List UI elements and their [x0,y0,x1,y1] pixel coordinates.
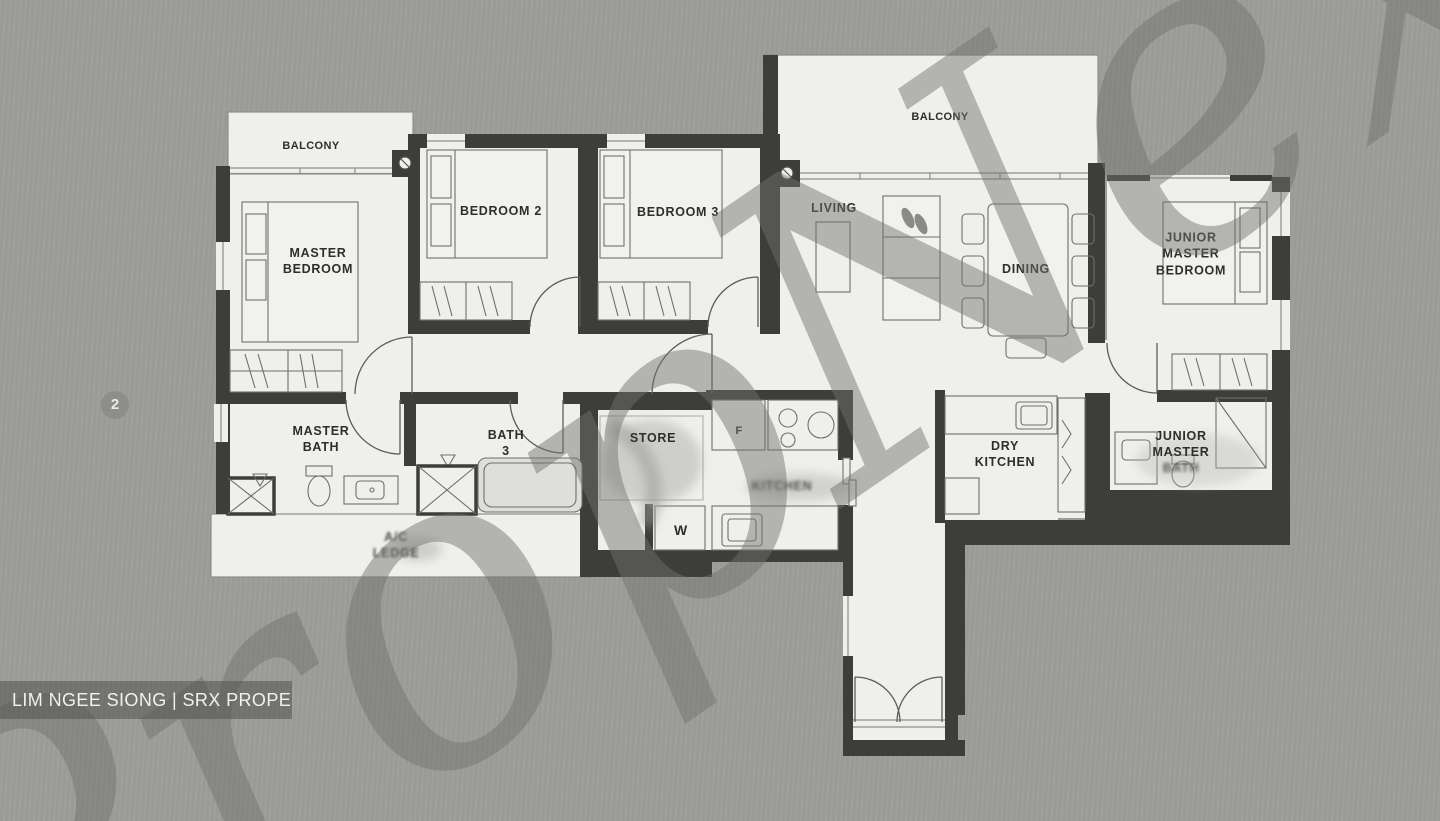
fridge-label: F [735,424,742,438]
room-label-ac-ledge: A/C LEDGE [373,529,420,562]
room-label-junior-master-bath-smudged: BATH [1163,460,1200,476]
room-label-living: LIVING [811,200,857,216]
attribution-bar: LIM NGEE SIONG | SRX PROPERTY [0,681,292,719]
room-label-junior-master-bath: JUNIOR MASTER [1153,428,1210,461]
room-label-store: STORE [630,430,676,446]
floor-marker-badge: 2 [101,391,129,419]
attribution-text: LIM NGEE SIONG | SRX PROPERTY [12,690,292,710]
room-label-bedroom-2: BEDROOM 2 [460,203,542,219]
room-label-master-bath: MASTER BATH [293,423,350,456]
room-label-kitchen-smudged: KITCHEN [752,478,812,494]
room-label-bedroom-3: BEDROOM 3 [637,204,719,220]
room-label-master-bedroom: MASTER BEDROOM [283,245,353,278]
room-label-balcony-left: BALCONY [282,139,339,153]
room-label-bath-3: BATH 3 [488,427,525,460]
room-label-junior-master-bedroom: JUNIOR MASTER BEDROOM [1156,230,1226,279]
room-label-dining: DINING [1002,261,1050,277]
washer-label: W [674,521,688,539]
room-label-balcony-top: BALCONY [911,110,968,124]
floorplan-photo: BALCONY MASTER BEDROOM BEDROOM 2 BEDROOM… [0,0,1440,821]
room-label-dry-kitchen: DRY KITCHEN [975,438,1035,471]
